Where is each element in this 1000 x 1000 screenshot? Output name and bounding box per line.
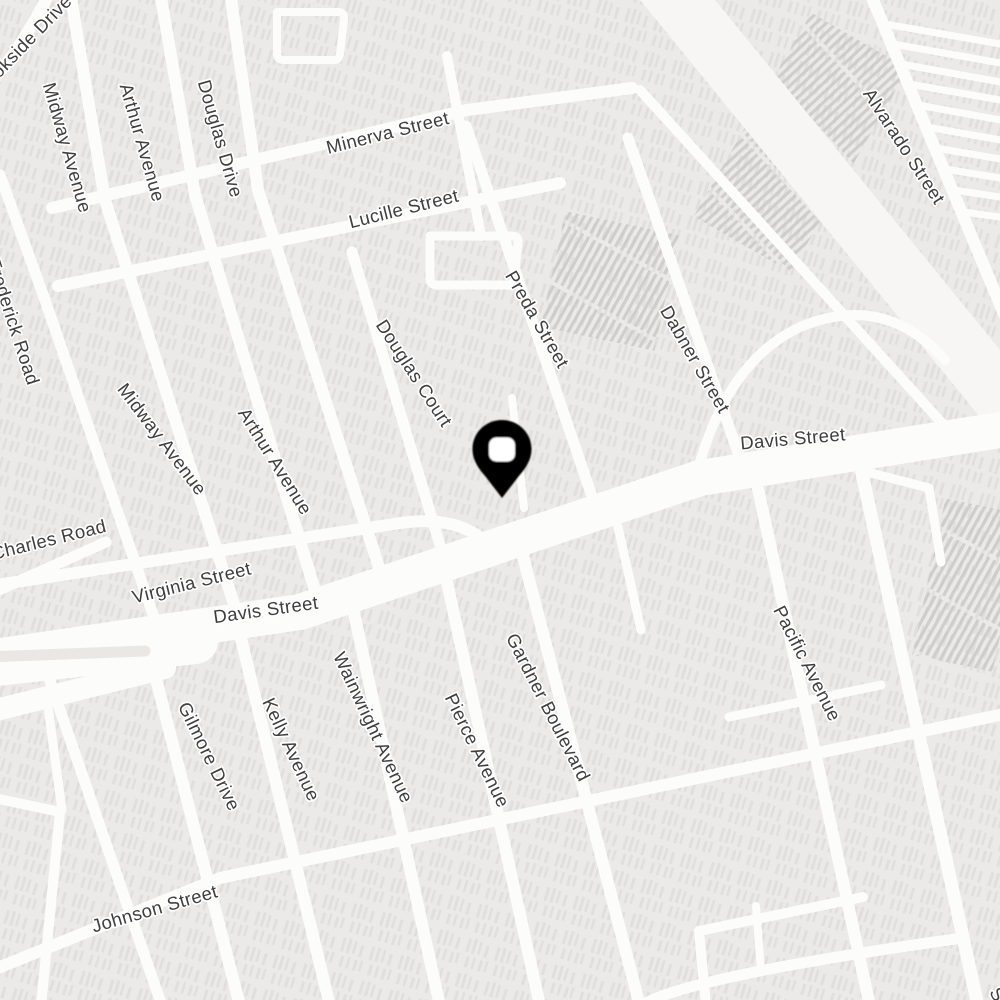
road-se-stub: [756, 906, 761, 971]
map-svg: Brookside DriveMidway AvenueArthur Avenu…: [0, 0, 1000, 1000]
pin-hole: [489, 438, 515, 462]
map-canvas[interactable]: Brookside DriveMidway AvenueArthur Avenu…: [0, 0, 1000, 1000]
road-davis-median-island: [0, 651, 145, 657]
